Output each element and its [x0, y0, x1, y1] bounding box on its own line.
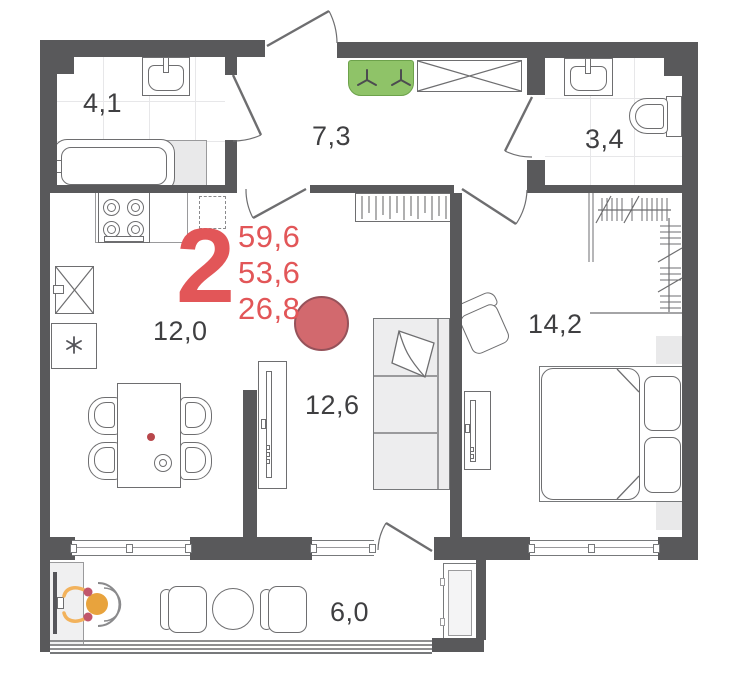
balcony-armchair-icon [260, 586, 307, 633]
bathtub-inner [61, 147, 167, 185]
nightstand [656, 336, 684, 364]
bed-icon [541, 368, 640, 500]
wardrobe-icon [417, 60, 522, 92]
wall-segment [190, 537, 312, 560]
stove-handle [104, 236, 144, 242]
kitchen-door-icon [246, 189, 306, 218]
toilet-bowl [635, 104, 664, 129]
wall-segment [310, 185, 454, 193]
stove-burner-icon [131, 203, 140, 212]
wall-segment [527, 42, 545, 95]
room-label-balcony: 6,0 [330, 597, 369, 628]
balcony-glazing [50, 644, 432, 646]
room-label-bathroom: 4,1 [83, 88, 122, 119]
tv-bracket [465, 424, 470, 433]
closet-hatch [589, 193, 682, 313]
wc-sink-tap [585, 58, 591, 74]
area-stat-living: 53,6 [238, 257, 300, 288]
nightstand [656, 502, 684, 530]
wall-segment [225, 40, 237, 75]
stove-burner-icon [107, 225, 116, 234]
tv-connector [266, 445, 270, 450]
dining-chair-icon [88, 442, 120, 480]
wall-segment [40, 560, 50, 652]
tile-line [545, 156, 682, 157]
sofa-icon [373, 318, 450, 490]
floor-plan: 4,1 7,3 3,4 12,0 12,6 14,2 6,0 2 59,6 53… [0, 0, 738, 700]
clothes-rail-icon [355, 193, 452, 222]
wall-segment [40, 40, 57, 193]
wall-segment [450, 193, 462, 537]
tv-connector [470, 447, 474, 452]
view-marker[interactable] [294, 296, 349, 351]
area-stat-total: 59,6 [238, 221, 300, 252]
wall-segment [337, 42, 698, 58]
balcony-glazing [50, 652, 432, 654]
monitor-stand [57, 597, 64, 609]
pillow-icon [644, 376, 681, 431]
ac-unit-tab [440, 618, 445, 626]
bedroom-door-icon [462, 189, 527, 224]
stove-burner-icon [131, 225, 140, 234]
office-chair-icon [98, 583, 121, 626]
bathroom-door-icon [233, 75, 261, 141]
pillow-icon [644, 437, 681, 493]
wall-segment [658, 537, 698, 560]
dining-chair-icon [180, 397, 212, 435]
dining-chair-icon [180, 442, 212, 480]
rooms-count: 2 [176, 213, 233, 319]
wall-segment [434, 537, 530, 560]
wall-segment [243, 390, 257, 537]
wall-segment [432, 638, 484, 652]
wall-segment [527, 185, 698, 193]
wall-segment [476, 560, 486, 640]
tv-connector [266, 452, 270, 457]
balcony-door-icon [378, 523, 432, 551]
table-dot [147, 433, 155, 441]
balcony-table-icon [212, 588, 254, 630]
area-stat-kitchen: 26,8 [238, 293, 300, 324]
stove-burner-icon [107, 203, 116, 212]
room-label-wc: 3,4 [585, 124, 624, 155]
wall-segment [682, 58, 698, 560]
window-icon [72, 540, 190, 556]
ac-unit-inner [448, 570, 472, 636]
fridge-icon [51, 323, 97, 369]
window-icon [530, 540, 658, 556]
tv-bracket [261, 419, 266, 429]
room-label-hallway: 7,3 [312, 121, 351, 152]
kitchen-sink-tap [53, 285, 64, 294]
shoe-cabinet-icon [348, 60, 414, 96]
entry-door-icon [267, 11, 337, 46]
wall-segment [40, 193, 50, 560]
window-icon [312, 540, 374, 556]
wall-segment [225, 140, 237, 193]
ac-unit-tab [440, 578, 445, 586]
toilet-tank [666, 96, 682, 137]
room-label-living: 12,6 [305, 390, 360, 421]
table-plate-icon [159, 459, 167, 467]
wall-segment [40, 185, 237, 193]
room-label-bedroom: 14,2 [528, 309, 583, 340]
tv-screen [470, 400, 476, 462]
tv-connector [266, 459, 270, 464]
wc-door-icon [505, 97, 532, 157]
dining-chair-icon [88, 397, 120, 435]
balcony-glazing [50, 648, 432, 650]
balcony-glazing [50, 640, 432, 642]
bath-sink-tap [163, 57, 169, 73]
tv-connector [470, 454, 474, 459]
balcony-armchair-icon [160, 586, 207, 633]
